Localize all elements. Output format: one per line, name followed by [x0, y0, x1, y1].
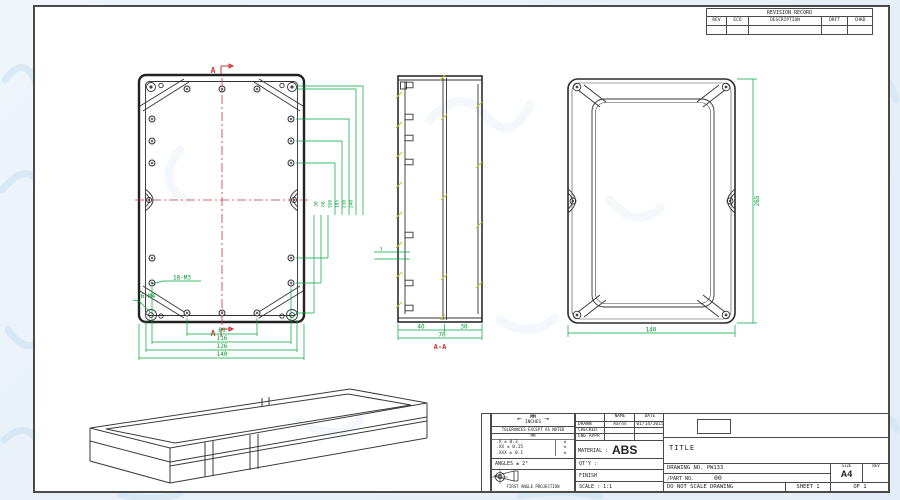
revision-empty-chkd: [847, 25, 873, 35]
scale-row: SCALE : 1:1: [575, 481, 664, 493]
dim-3: 3: [380, 247, 383, 253]
callout-18-M3: 18-M3: [173, 275, 191, 282]
dim-70: 70: [438, 332, 446, 339]
stack-dim-2: 160: [328, 200, 334, 208]
callout-6-M4: 6-M4: [141, 293, 156, 300]
title-label: TITLE: [669, 444, 695, 452]
revision-empty-description: [748, 25, 822, 35]
material-row: MATERIAL : ABS: [575, 440, 664, 459]
rear-corner-braces: [573, 83, 730, 319]
tolerance-table: MM .X ± 0.3± .XX ± 0.15± .XXX ± 0.1±: [491, 433, 575, 459]
do-not-scale-cell: DO NOT SCALE DRAWING: [663, 482, 786, 493]
revision-empty-eco: [726, 25, 749, 35]
rev-cell: REV: [862, 463, 890, 483]
dim-265: 265: [754, 195, 761, 206]
revision-empty-drft: [821, 25, 848, 35]
eng-appr-label: ENG APPR: [578, 434, 600, 439]
revision-empty-rev: [706, 25, 727, 35]
centerlines: [135, 64, 308, 337]
section-label-a-top: A: [211, 66, 216, 75]
units-arrow-left-icon: ◄─: [516, 417, 521, 422]
stack-dim-5: 240: [349, 200, 355, 208]
date-header: DATE: [634, 414, 664, 421]
size-cell: SIZE A4: [830, 463, 863, 483]
size-value: A4: [831, 469, 862, 479]
drawing-sheet-page: A A 60 116 126 140 18-M3 6-M4 30 60: [0, 0, 900, 500]
corner-screw-bosses: [146, 83, 298, 321]
dim-140-rear: 140: [646, 327, 657, 334]
stack-dim-1: 60: [321, 201, 327, 207]
title-block-side-strip: DETACHED LISTS: [481, 413, 491, 493]
units-arrow-right-icon: ─►: [544, 417, 549, 422]
tol-row-2-in: ±: [555, 451, 574, 456]
dim-30: 30: [460, 324, 468, 331]
watermark-interior: [169, 101, 660, 432]
sheet-cell: SHEET 1: [785, 482, 831, 493]
section-tabs: [405, 82, 413, 311]
section-dimensions: 3 40 30 70: [374, 247, 482, 341]
dim-116: 116: [217, 335, 228, 342]
stack-dim-0: 30: [314, 201, 320, 207]
title-cell: TITLE: [663, 437, 890, 464]
side-strip-label: DETACHED LISTS: [481, 437, 483, 471]
projection-label: FIRST ANGLE PROJECTION: [492, 485, 574, 490]
logo-box: [697, 419, 731, 434]
dim-40: 40: [417, 324, 425, 331]
material-value: ABS: [612, 443, 637, 457]
target-projection-icon: [492, 470, 508, 484]
dim-60: 60: [218, 327, 226, 334]
section-title-a-a: A-A: [434, 343, 447, 351]
dim-140: 140: [217, 351, 228, 358]
units-inches: INCHES: [525, 420, 541, 425]
name-header: NAME: [604, 414, 635, 421]
stack-dim-4: 210: [342, 200, 348, 208]
section-label-a-bottom: A: [211, 329, 216, 338]
units-cell: ◄─ MM INCHES ─►: [491, 413, 575, 427]
of-cell: OF 1: [830, 482, 890, 493]
mounting-holes: [149, 86, 294, 316]
title-top-cell: [663, 413, 890, 438]
front-view-dimensions: 60 116 126 140 18-M3 6-M4 30 60 160 185 …: [133, 86, 363, 360]
isometric-view: [90, 389, 427, 483]
tol-row-2-mm: .XXX ± 0.1: [492, 451, 555, 456]
projection-cell: FIRST ANGLE PROJECTION: [491, 469, 575, 493]
dim-126: 126: [217, 343, 228, 350]
material-label: MATERIAL :: [578, 448, 608, 454]
rev-label: REV: [863, 464, 889, 469]
stack-dim-3: 185: [335, 200, 341, 208]
front-view: A A 60 116 126 140 18-M3 6-M4 30 60: [133, 64, 363, 360]
